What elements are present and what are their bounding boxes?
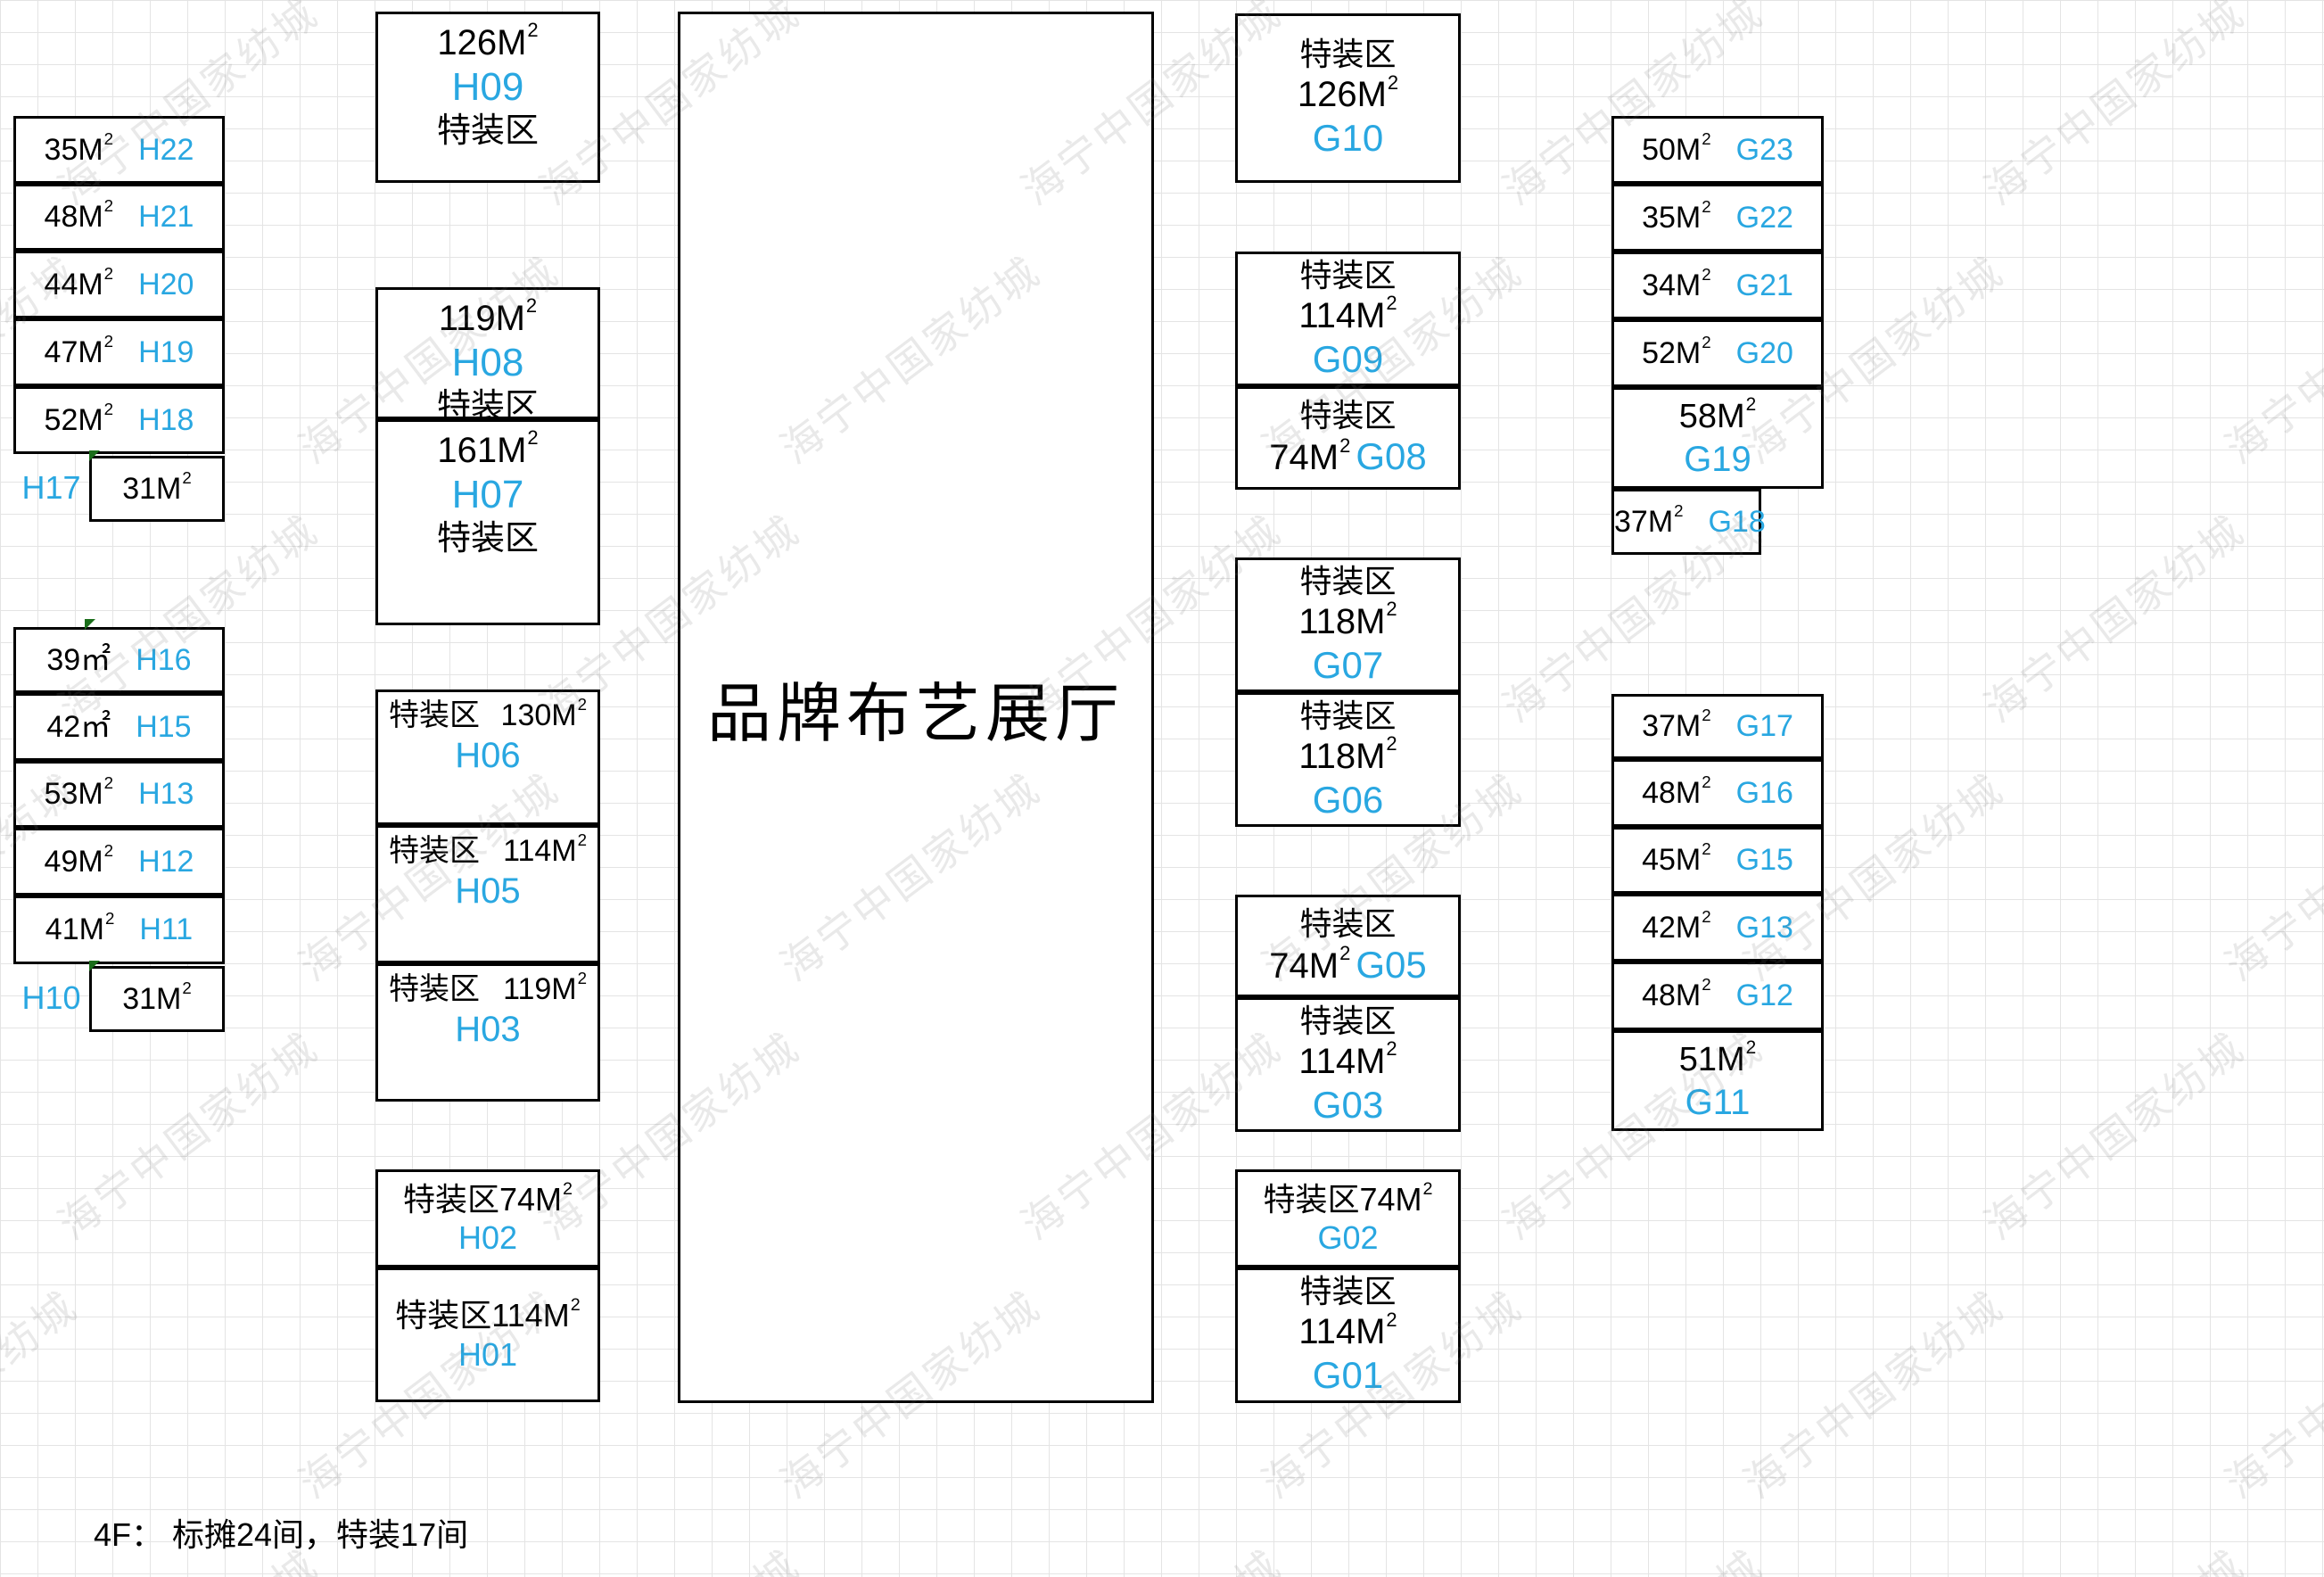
booth-code-H17: H17 (13, 454, 89, 522)
special-zone-label: 特装区 (1299, 698, 1396, 734)
watermark-text: 海宁中国家纺城 (1971, 1533, 2255, 1577)
booth-G23[interactable]: 50M2G23 (1611, 116, 1824, 184)
booth-code: G07 (1313, 644, 1383, 686)
booth-code: G18 (1709, 505, 1766, 539)
booth-G11[interactable]: 51M2G11 (1611, 1030, 1824, 1131)
booth-G01[interactable]: 特装区114M2G01 (1235, 1267, 1461, 1403)
booth-code: H02 (458, 1219, 517, 1256)
booth-H18[interactable]: 52M2H18 (13, 386, 225, 454)
booth-code: G22 (1736, 201, 1793, 235)
booth-H01[interactable]: 特装区114M2H01 (375, 1267, 600, 1402)
booth-code: G10 (1313, 117, 1383, 159)
special-zone-label: 特装区 (1299, 36, 1396, 72)
booth-area: 74M2 (1359, 1181, 1432, 1218)
booth-G08[interactable]: 特装区74M2G08 (1235, 386, 1461, 490)
booth-H19[interactable]: 47M2H19 (13, 318, 225, 386)
booth-G03[interactable]: 特装区114M2G03 (1235, 997, 1461, 1132)
booth-area: 42M2 (1642, 911, 1711, 945)
booth-area: 74M2 (1269, 438, 1350, 477)
watermark-text: 海宁中国家纺城 (2212, 240, 2324, 475)
booth-area: 45M2 (1642, 843, 1711, 877)
watermark-text: 海宁中国家纺城 (0, 1275, 88, 1509)
booth-area: 52M2 (45, 403, 114, 437)
booth-area: 58M2 (1679, 398, 1757, 435)
watermark-text: 海宁中国家纺城 (45, 1016, 329, 1251)
booth-code: G02 (1317, 1219, 1378, 1256)
booth-G21[interactable]: 34M2G21 (1611, 252, 1824, 319)
booth-area: 31M2 (122, 982, 192, 1016)
floorplan-canvas: 品牌布艺展厅 35M2H2248M2H2144M2H2047M2H1952M2H… (0, 0, 2324, 1577)
booth-G22[interactable]: 35M2G22 (1611, 184, 1824, 252)
booth-G02[interactable]: 特装区74M2G02 (1235, 1169, 1461, 1267)
booth-area: 74M2 (1269, 946, 1350, 986)
booth-area: 50M2 (1642, 133, 1711, 167)
special-zone-label: 特装区 (1299, 257, 1396, 293)
hall-title: 品牌布艺展厅 (707, 661, 1125, 755)
special-zone-label: 特装区 (1299, 1273, 1396, 1309)
booth-area: 37M2 (1642, 709, 1711, 743)
booth-H22[interactable]: 35M2H22 (13, 116, 225, 184)
booth-H07[interactable]: 161M2H07特装区 (375, 419, 600, 625)
booth-area: 37M2 (1614, 505, 1684, 539)
booth-H08[interactable]: 119M2H08特装区 (375, 287, 600, 419)
booth-H20[interactable]: 44M2H20 (13, 251, 225, 318)
booth-G05[interactable]: 特装区74M2G05 (1235, 895, 1461, 997)
booth-G19[interactable]: 58M2G19 (1611, 387, 1824, 489)
booth-H13[interactable]: 53M2H13 (13, 761, 225, 828)
booth-H03[interactable]: 特装区119M2H03 (375, 963, 600, 1102)
booth-annex-11[interactable]: 31M2 (89, 966, 225, 1032)
booth-area: 52M2 (1642, 336, 1711, 370)
watermark-text: 海宁中国家纺城 (1730, 1275, 2015, 1509)
booth-area: 34M2 (1642, 268, 1711, 302)
booth-area: 44M2 (45, 268, 114, 301)
booth-code: H19 (138, 335, 194, 369)
booth-G17[interactable]: 37M2G17 (1611, 694, 1824, 759)
booth-area: 114M2 (503, 833, 587, 870)
floor-summary: 4F： 标摊24间，特装17间 (94, 1509, 468, 1556)
booth-code: G19 (1684, 440, 1751, 479)
booth-H15[interactable]: 42㎡H15 (13, 693, 225, 761)
booth-code: G12 (1736, 978, 1793, 1012)
booth-code: G03 (1313, 1084, 1383, 1126)
watermark-text: 海宁中国家纺城 (1971, 0, 2255, 217)
booth-code: H07 (452, 473, 524, 516)
booth-area: 48M2 (1642, 776, 1711, 810)
booth-G10[interactable]: 特装区126M2G10 (1235, 13, 1461, 183)
special-zone-label: 特装区 (389, 833, 480, 870)
booth-code: G17 (1736, 709, 1793, 743)
special-zone-label: 特装区 (1263, 1181, 1359, 1218)
booth-area: 42㎡ (46, 710, 111, 744)
booth-code: H01 (458, 1336, 517, 1373)
special-zone-label: 特装区 (403, 1181, 499, 1218)
booth-G09[interactable]: 特装区114M2G09 (1235, 252, 1461, 386)
booth-code: G06 (1313, 779, 1383, 821)
booth-code: H20 (138, 268, 194, 301)
booth-G18[interactable]: 37M2G18 (1611, 489, 1761, 555)
booth-code: H06 (455, 736, 520, 775)
booth-code-H10: H10 (13, 964, 89, 1032)
booth-area: 161M2 (437, 431, 538, 470)
booth-area: 49M2 (45, 845, 114, 879)
special-zone-label: 特装区 (1299, 1003, 1396, 1039)
special-zone-label: 特装区 (437, 112, 539, 150)
booth-code: G23 (1736, 133, 1793, 167)
booth-code: G15 (1736, 843, 1793, 877)
booth-code: H15 (136, 710, 191, 744)
booth-code: H18 (138, 403, 194, 437)
booth-code: G21 (1736, 268, 1793, 302)
booth-H05[interactable]: 特装区114M2H05 (375, 825, 600, 963)
booth-code: H03 (455, 1010, 520, 1049)
booth-H02[interactable]: 特装区74M2H02 (375, 1169, 600, 1267)
booth-area: 114M2 (1298, 1042, 1397, 1081)
booth-area: 119M2 (439, 299, 537, 338)
booth-annex-5[interactable]: 31M2 (89, 456, 225, 522)
booth-code: G13 (1736, 911, 1793, 945)
watermark-text: 海宁中国家纺城 (1489, 1533, 1774, 1577)
booth-G13[interactable]: 42M2G13 (1611, 894, 1824, 962)
booth-G16[interactable]: 48M2G16 (1611, 759, 1824, 827)
booth-code: G11 (1685, 1083, 1751, 1122)
booth-code: H09 (452, 65, 524, 109)
booth-G20[interactable]: 52M2G20 (1611, 319, 1824, 387)
booth-code: G01 (1313, 1354, 1383, 1396)
booth-H11[interactable]: 41M2H11 (13, 896, 225, 964)
booth-area: 35M2 (45, 133, 114, 167)
booth-code: H16 (136, 643, 191, 677)
booth-area: 39㎡ (46, 643, 111, 677)
exhibition-hall[interactable]: 品牌布艺展厅 (678, 12, 1154, 1403)
booth-code: H12 (138, 845, 194, 879)
booth-area: 47M2 (45, 335, 114, 369)
booth-area: 48M2 (45, 200, 114, 234)
special-zone-label: 特装区 (437, 520, 539, 557)
booth-area: 53M2 (45, 777, 114, 811)
booth-area: 114M2 (491, 1297, 580, 1333)
watermark-text: 海宁中国家纺城 (2212, 757, 2324, 992)
booth-area: 51M2 (1679, 1041, 1757, 1078)
booth-H09[interactable]: 126M2H09特装区 (375, 12, 600, 183)
booth-code: G08 (1356, 435, 1426, 477)
special-zone-label: 特装区 (395, 1297, 491, 1333)
booth-G06[interactable]: 特装区118M2G06 (1235, 692, 1461, 827)
booth-area: 119M2 (503, 971, 587, 1008)
booth-code: H05 (455, 871, 520, 911)
booth-code: G16 (1736, 776, 1793, 810)
booth-code: H13 (138, 777, 194, 811)
booth-H16[interactable]: 39㎡H16 (13, 627, 225, 693)
booth-code: H21 (138, 200, 194, 234)
watermark-text: 海宁中国家纺城 (1971, 1016, 2255, 1251)
booth-area: 35M2 (1642, 201, 1711, 235)
booth-area: 114M2 (1298, 296, 1397, 335)
booth-H21[interactable]: 48M2H21 (13, 184, 225, 251)
booth-G15[interactable]: 45M2G15 (1611, 827, 1824, 894)
booth-area: 126M2 (437, 23, 538, 62)
booth-area: 74M2 (499, 1181, 573, 1218)
booth-code: G09 (1313, 338, 1383, 380)
booth-area: 118M2 (1298, 737, 1397, 776)
booth-area: 126M2 (1298, 75, 1398, 114)
special-zone-label: 特装区 (389, 698, 480, 734)
booth-G07[interactable]: 特装区118M2G07 (1235, 557, 1461, 692)
watermark-text: 海宁中国家纺城 (2212, 1275, 2324, 1509)
booth-code: G20 (1736, 336, 1793, 370)
booth-code: H08 (452, 341, 524, 384)
booth-code: H22 (138, 133, 194, 167)
special-zone-label: 特装区 (1299, 563, 1396, 599)
watermark-text: 海宁中国家纺城 (1008, 1533, 1292, 1577)
booth-area: 48M2 (1642, 978, 1711, 1012)
booth-H06[interactable]: 特装区130M2H06 (375, 689, 600, 825)
booth-area: 41M2 (45, 912, 115, 946)
booth-code: H11 (139, 912, 193, 946)
booth-code: G05 (1356, 944, 1426, 986)
booth-area: 130M2 (501, 698, 587, 734)
booth-area: 118M2 (1298, 602, 1397, 641)
special-zone-label: 特装区 (389, 971, 480, 1008)
booth-H12[interactable]: 49M2H12 (13, 828, 225, 896)
special-zone-label: 特装区 (1299, 905, 1396, 942)
booth-G12[interactable]: 48M2G12 (1611, 962, 1824, 1030)
special-zone-label: 特装区 (1299, 397, 1396, 433)
booth-area: 31M2 (122, 472, 192, 506)
watermark-text: 海宁中国家纺城 (526, 1533, 811, 1577)
watermark-text: 海宁中国家纺城 (1971, 499, 2255, 733)
booth-area: 114M2 (1298, 1312, 1397, 1351)
